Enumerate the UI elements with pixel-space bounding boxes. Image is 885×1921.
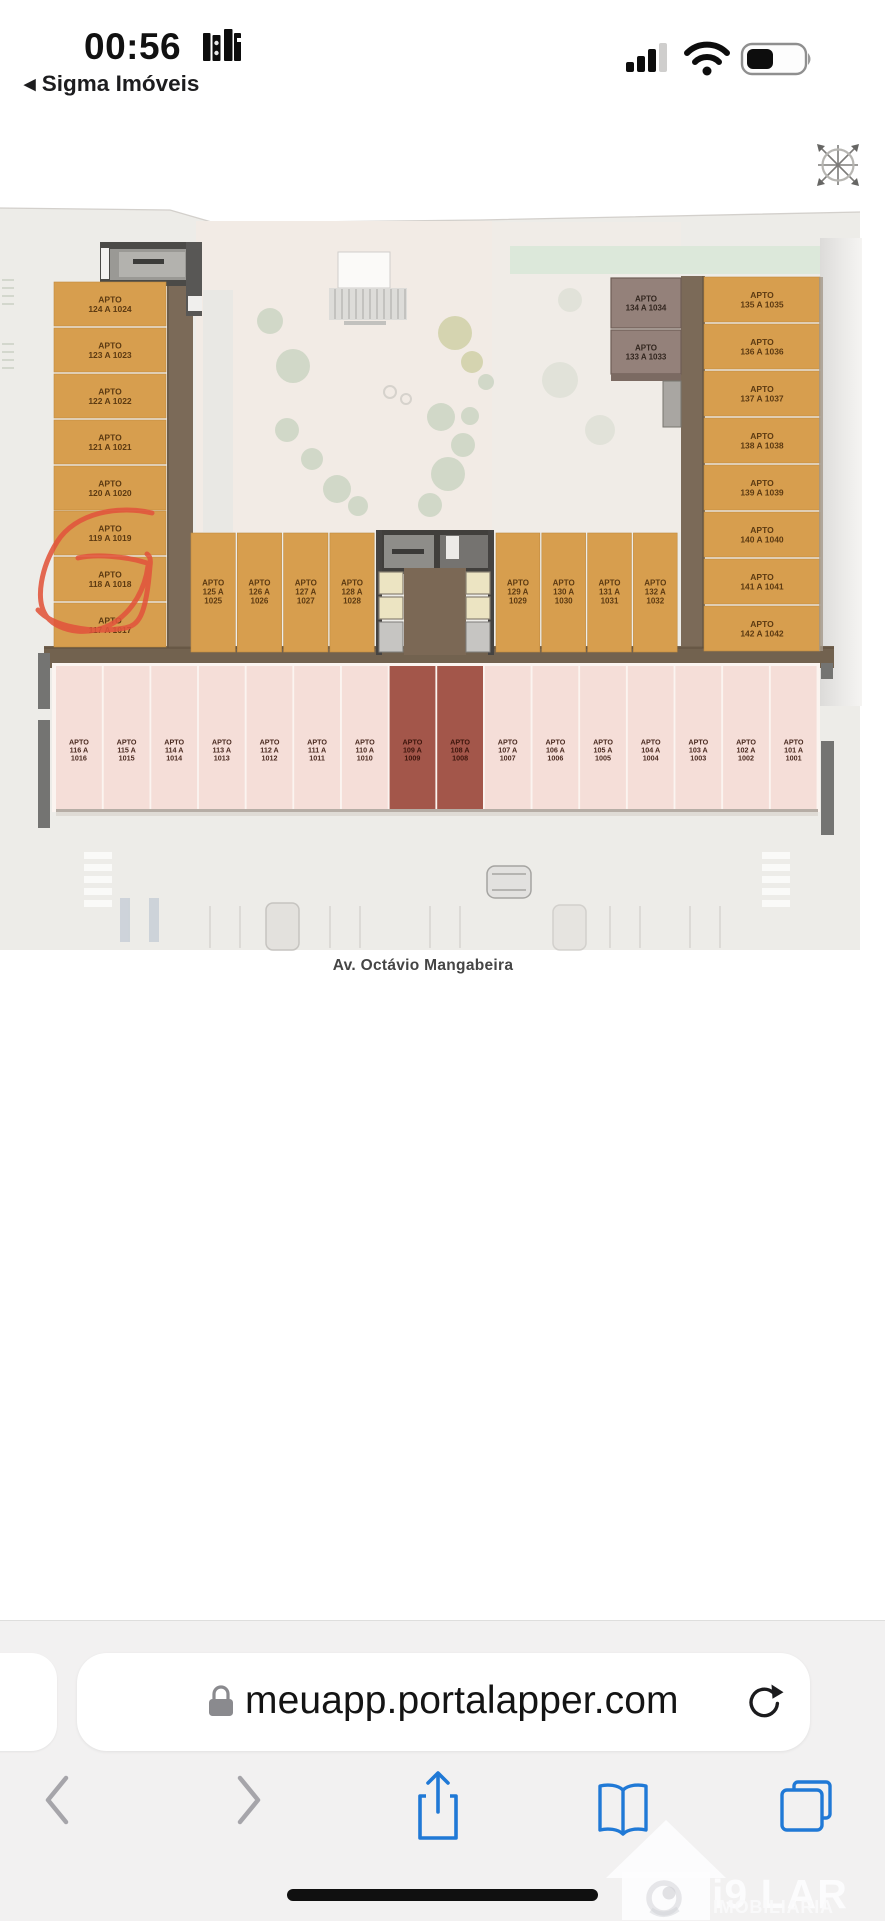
svg-text:1007: 1007	[500, 754, 516, 763]
svg-text:141 A 1041: 141 A 1041	[740, 582, 784, 592]
svg-text:APTO: APTO	[248, 579, 270, 588]
svg-text:133 A 1033: 133 A 1033	[626, 353, 667, 362]
svg-text:1014: 1014	[166, 754, 182, 763]
svg-text:1012: 1012	[262, 754, 278, 763]
svg-text:APTO: APTO	[750, 619, 774, 629]
svg-text:APTO: APTO	[98, 524, 122, 534]
svg-text:136 A 1036: 136 A 1036	[740, 347, 784, 357]
svg-text:APTO: APTO	[98, 433, 122, 443]
svg-text:APTO: APTO	[295, 579, 317, 588]
svg-text:1008: 1008	[452, 754, 468, 763]
svg-text:119 A 1019: 119 A 1019	[89, 533, 132, 543]
svg-text:APTO: APTO	[553, 579, 575, 588]
svg-text:135 A 1035: 135 A 1035	[740, 300, 784, 310]
svg-text:APTO: APTO	[750, 572, 774, 582]
svg-text:127 A: 127 A	[295, 588, 316, 597]
svg-text:1030: 1030	[555, 597, 573, 606]
svg-text:128 A: 128 A	[341, 588, 362, 597]
svg-text:APTO: APTO	[98, 479, 122, 489]
svg-text:APTO: APTO	[750, 431, 774, 441]
svg-text:APTO: APTO	[507, 579, 529, 588]
svg-text:129 A: 129 A	[507, 588, 528, 597]
svg-text:Av. Octávio Mangabeira: Av. Octávio Mangabeira	[333, 957, 514, 974]
svg-text:APTO: APTO	[341, 579, 363, 588]
svg-text:1029: 1029	[509, 597, 527, 606]
svg-text:125 A: 125 A	[203, 588, 224, 597]
svg-text:1026: 1026	[251, 597, 269, 606]
svg-text:140 A 1040: 140 A 1040	[740, 535, 784, 545]
svg-text:APTO: APTO	[750, 290, 774, 300]
svg-text:1025: 1025	[204, 597, 222, 606]
svg-text:APTO: APTO	[644, 579, 666, 588]
svg-text:1028: 1028	[343, 597, 361, 606]
svg-text:1002: 1002	[738, 754, 754, 763]
svg-text:APTO: APTO	[750, 525, 774, 535]
svg-text:1001: 1001	[786, 754, 802, 763]
svg-text:134 A 1034: 134 A 1034	[626, 304, 667, 313]
svg-text:1027: 1027	[297, 597, 315, 606]
svg-text:1003: 1003	[690, 754, 706, 763]
svg-text:1004: 1004	[643, 754, 659, 763]
svg-text:1009: 1009	[404, 754, 420, 763]
svg-text:APTO: APTO	[750, 384, 774, 394]
svg-text:1015: 1015	[119, 754, 135, 763]
svg-text:APTO: APTO	[750, 337, 774, 347]
svg-text:121 A 1021: 121 A 1021	[88, 442, 132, 452]
svg-text:APTO: APTO	[202, 579, 224, 588]
svg-text:142 A 1042: 142 A 1042	[740, 629, 784, 639]
svg-text:1031: 1031	[601, 597, 619, 606]
svg-text:132 A: 132 A	[645, 588, 666, 597]
svg-text:131 A: 131 A	[599, 588, 620, 597]
svg-text:120 A 1020: 120 A 1020	[88, 488, 132, 498]
svg-text:1010: 1010	[357, 754, 373, 763]
svg-text:1005: 1005	[595, 754, 611, 763]
svg-text:130 A: 130 A	[553, 588, 574, 597]
svg-text:APTO: APTO	[98, 295, 122, 305]
svg-text:139 A 1039: 139 A 1039	[740, 488, 784, 498]
svg-text:1013: 1013	[214, 754, 230, 763]
svg-text:APTO: APTO	[750, 478, 774, 488]
svg-text:1006: 1006	[547, 754, 563, 763]
svg-text:138 A 1038: 138 A 1038	[740, 441, 784, 451]
svg-text:APTO: APTO	[635, 344, 657, 353]
svg-text:APTO: APTO	[98, 570, 122, 580]
svg-text:APTO: APTO	[598, 579, 620, 588]
svg-text:1032: 1032	[646, 597, 664, 606]
svg-text:1016: 1016	[71, 754, 87, 763]
svg-text:APTO: APTO	[98, 387, 122, 397]
svg-text:126 A: 126 A	[249, 588, 270, 597]
svg-text:124 A 1024: 124 A 1024	[88, 304, 132, 314]
svg-text:APTO: APTO	[635, 295, 657, 304]
svg-text:APTO: APTO	[98, 341, 122, 351]
svg-text:118 A 1018: 118 A 1018	[89, 579, 132, 589]
svg-text:1011: 1011	[309, 754, 325, 763]
svg-text:122 A 1022: 122 A 1022	[88, 396, 132, 406]
svg-text:123 A 1023: 123 A 1023	[88, 350, 132, 360]
svg-text:137 A 1037: 137 A 1037	[740, 394, 784, 404]
